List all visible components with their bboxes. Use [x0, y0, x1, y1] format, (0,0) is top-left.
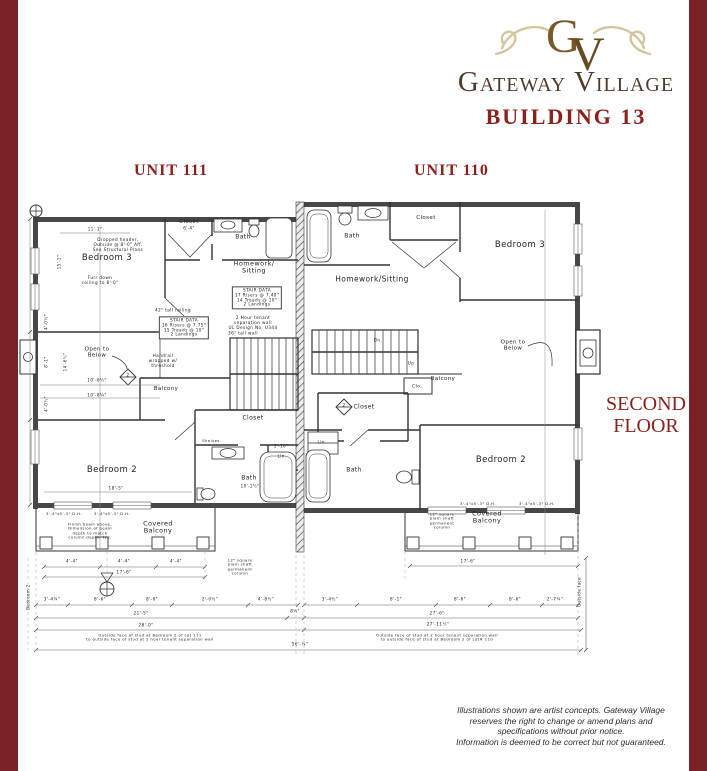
disclaimer-text: Illustrations shown are artist concepts.… — [420, 705, 702, 748]
floorplan-drawing — [0, 0, 707, 771]
page: G V Gateway Village BUILDING 13 UNIT 111… — [0, 0, 707, 771]
